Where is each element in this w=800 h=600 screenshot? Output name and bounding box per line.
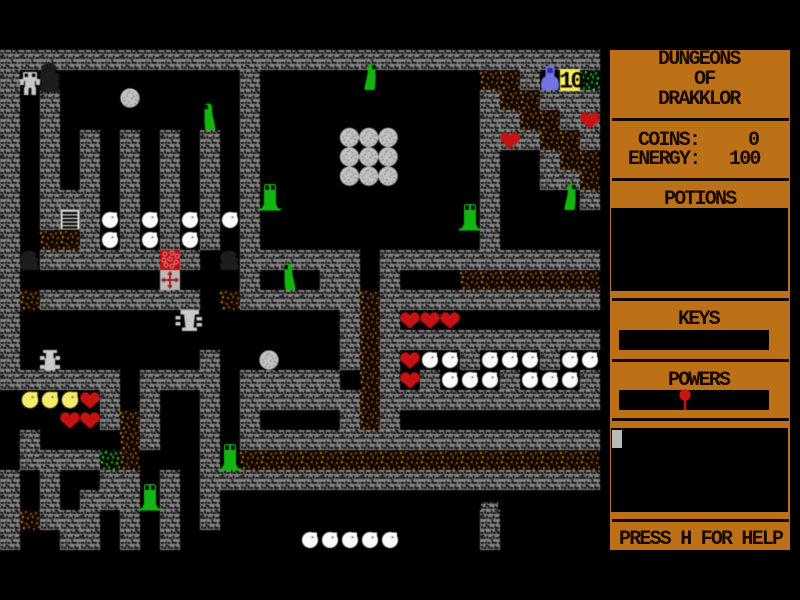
svg-text:10: 10: [559, 69, 583, 95]
